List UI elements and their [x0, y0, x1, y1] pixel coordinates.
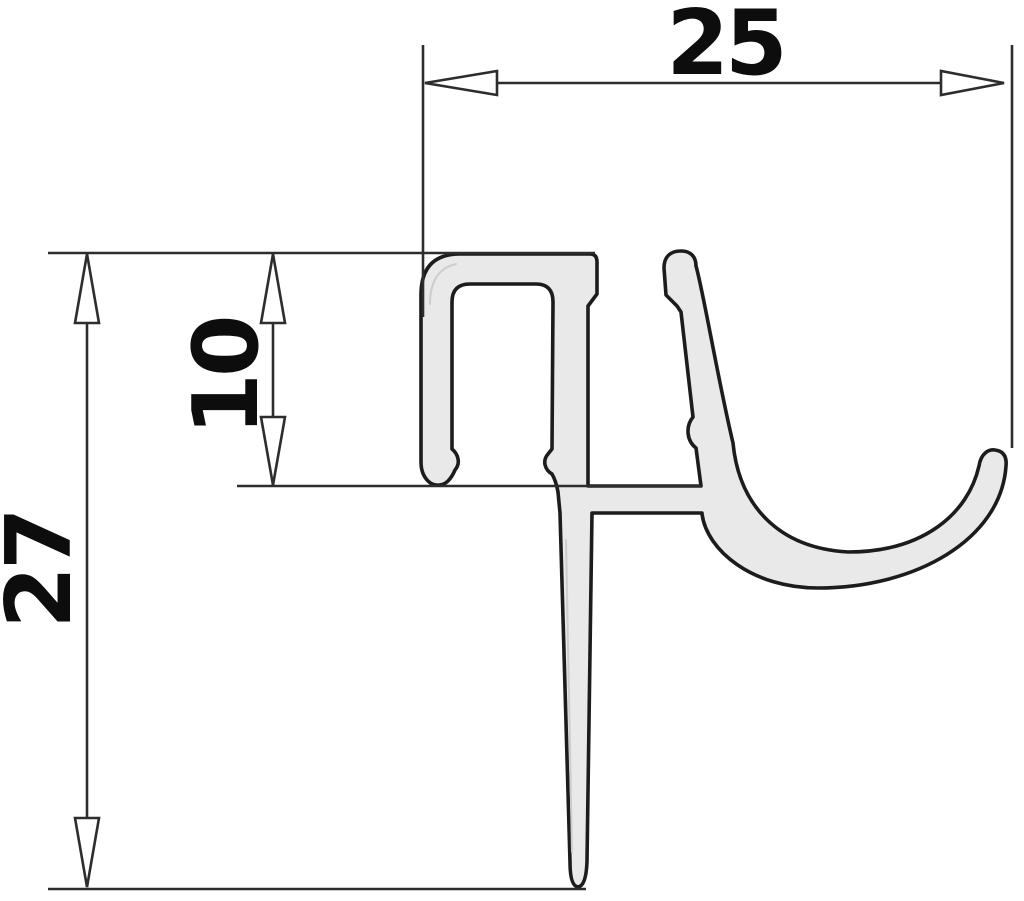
- arrowhead-depth-top: [261, 254, 285, 323]
- seal-profile-outline: [421, 251, 1006, 887]
- arrowhead-height-top: [75, 254, 99, 323]
- drawing-canvas: 25 10 27: [0, 0, 1024, 901]
- arrowhead-width-left: [425, 71, 497, 95]
- arrowhead-height-bottom: [75, 818, 99, 887]
- seal-profile: [421, 251, 1006, 887]
- dimension-label-height: 27: [0, 511, 92, 628]
- arrowhead-width-right: [941, 71, 1004, 95]
- dimension-labels: 25 10 27: [0, 0, 784, 629]
- dimension-label-width: 25: [666, 0, 783, 96]
- technical-drawing: 25 10 27: [0, 0, 1024, 901]
- dimension-label-depth: 10: [174, 318, 279, 436]
- dimension-lines: [48, 45, 1012, 889]
